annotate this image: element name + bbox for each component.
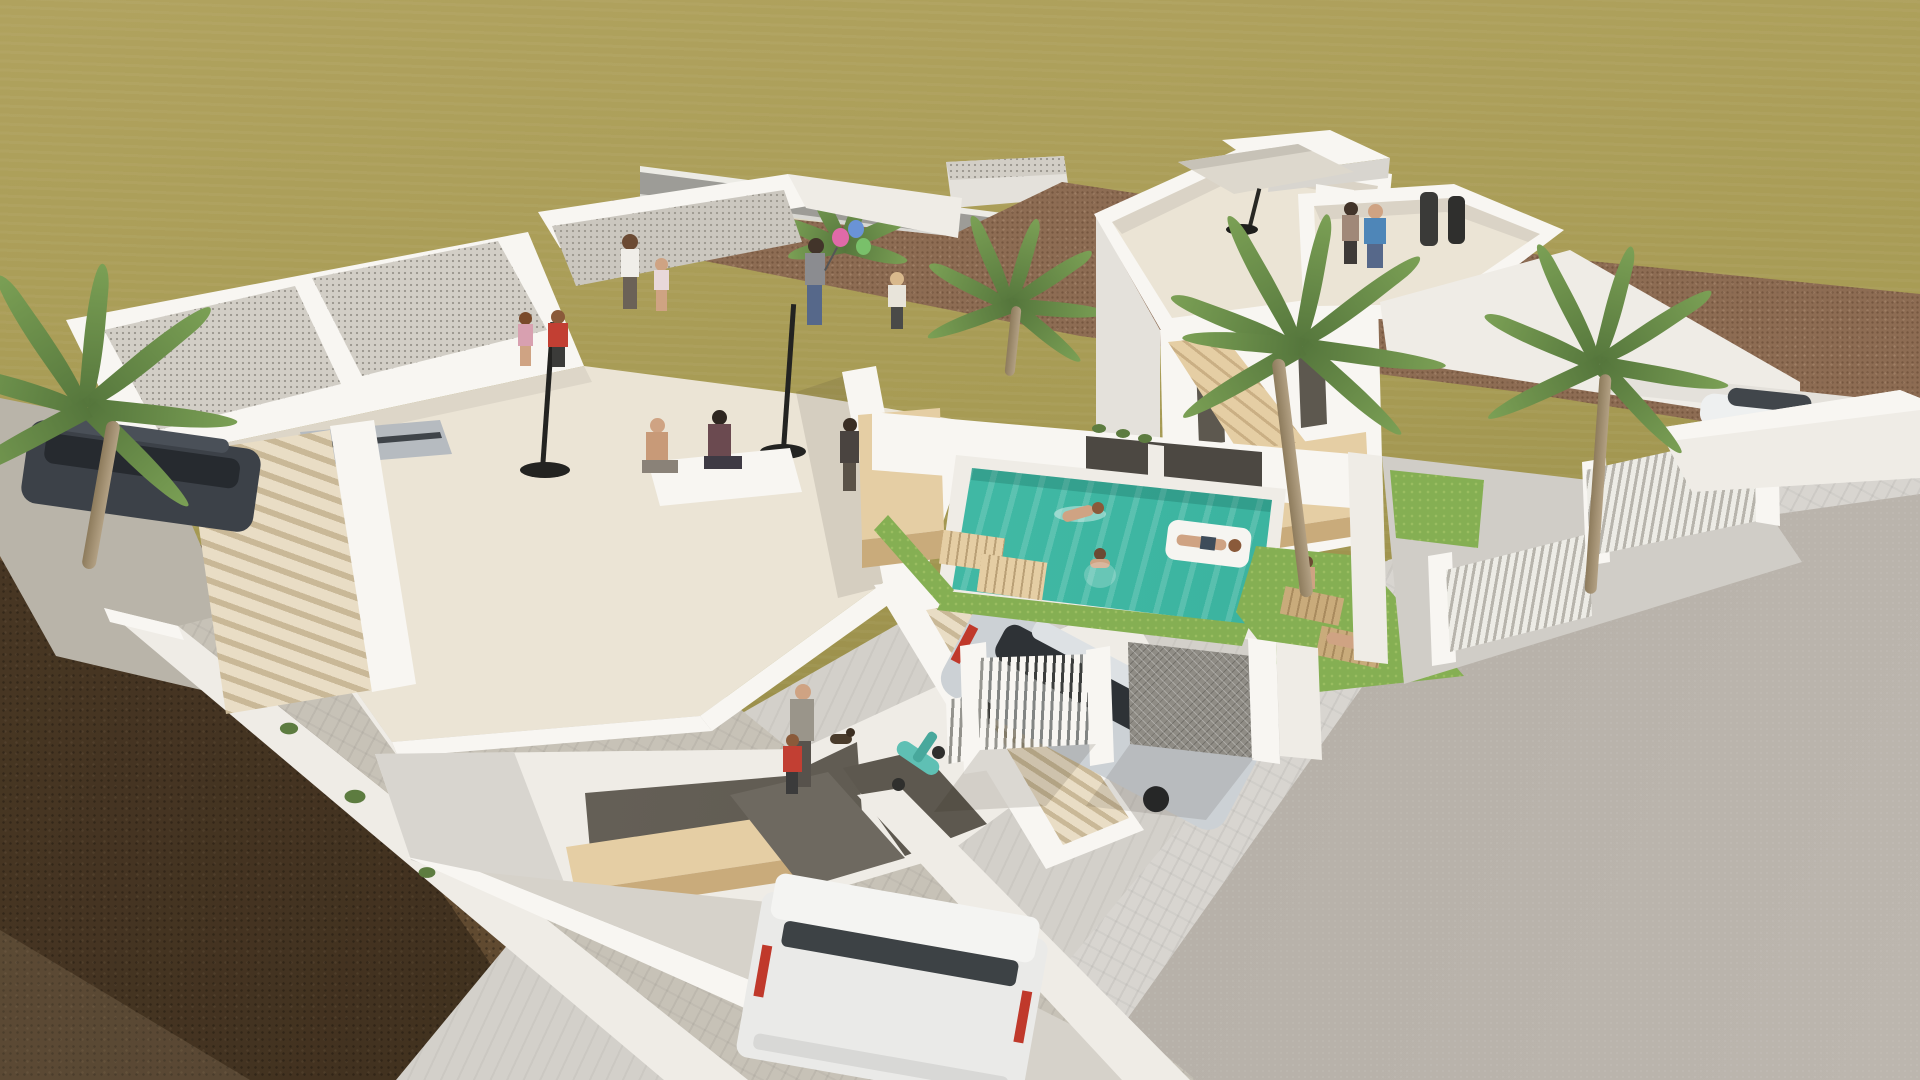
person-torso bbox=[1364, 218, 1386, 244]
person-torso bbox=[840, 431, 859, 463]
architectural-render-scene bbox=[0, 0, 1920, 1080]
person-legs bbox=[642, 460, 678, 473]
person-legs bbox=[552, 347, 565, 367]
person-standing-woman bbox=[618, 234, 644, 310]
swimmer-1 bbox=[1054, 498, 1114, 528]
person-head bbox=[1344, 202, 1358, 216]
scooter-wheel bbox=[892, 778, 905, 791]
person-legs bbox=[1344, 241, 1357, 264]
person-head bbox=[650, 418, 665, 433]
person-woman-with-balloons bbox=[800, 236, 836, 330]
person-legs bbox=[656, 290, 667, 311]
person-legs bbox=[843, 463, 856, 491]
balloon-green bbox=[856, 238, 871, 255]
person-woman-deck bbox=[1340, 202, 1362, 264]
balloon-blue bbox=[848, 220, 864, 238]
person-child-wing bbox=[884, 272, 910, 332]
swimmer-head bbox=[1092, 502, 1104, 514]
person-legs bbox=[807, 285, 822, 325]
person-on-stair-landing bbox=[836, 418, 864, 494]
person-head bbox=[622, 234, 638, 250]
person-child-backpack bbox=[780, 734, 806, 796]
balloon-pink bbox=[832, 228, 849, 247]
person-girl bbox=[516, 312, 536, 368]
person-seated-woman bbox=[700, 410, 746, 490]
person-dark-2 bbox=[1448, 196, 1465, 244]
plant-tuft bbox=[345, 790, 366, 804]
person-legs bbox=[704, 456, 742, 469]
person-torso bbox=[646, 432, 668, 462]
person-head bbox=[843, 418, 857, 432]
wall-plant bbox=[1116, 429, 1130, 438]
person-boy-red bbox=[545, 310, 575, 368]
person-torso bbox=[548, 323, 568, 347]
dog-head bbox=[846, 728, 855, 737]
person-head bbox=[890, 272, 904, 286]
umbrella-base-1 bbox=[520, 462, 570, 478]
person-seated-man bbox=[640, 418, 684, 490]
plant-tuft bbox=[280, 723, 298, 735]
person-legs bbox=[520, 346, 531, 366]
person-head bbox=[795, 684, 811, 700]
wall-plant bbox=[1092, 424, 1106, 433]
backpack-red bbox=[783, 746, 802, 772]
person-child bbox=[652, 258, 672, 312]
person-torso bbox=[621, 249, 639, 277]
person-legs bbox=[891, 307, 903, 329]
person-torso bbox=[654, 270, 669, 290]
person-torso bbox=[708, 424, 731, 458]
scooter-teal bbox=[884, 722, 958, 806]
swim-splash bbox=[1084, 562, 1116, 588]
person-legs bbox=[623, 277, 637, 309]
person-man-blue bbox=[1360, 204, 1390, 268]
person-head bbox=[712, 410, 727, 425]
person-head bbox=[808, 238, 824, 254]
wall-plant bbox=[1138, 434, 1152, 443]
scooter-wheel bbox=[932, 746, 945, 759]
float-person-shorts bbox=[1200, 536, 1216, 551]
person-legs bbox=[786, 772, 798, 794]
person-dark-1 bbox=[1420, 192, 1438, 246]
swimmer-2 bbox=[1084, 548, 1118, 592]
plant-tuft bbox=[419, 867, 436, 878]
person-head bbox=[1368, 204, 1383, 219]
person-head bbox=[551, 310, 565, 324]
person-legs bbox=[1367, 244, 1383, 268]
dog bbox=[826, 728, 856, 752]
person-torso bbox=[1342, 215, 1359, 241]
person-torso bbox=[888, 285, 906, 307]
person-torso bbox=[805, 253, 825, 285]
person-torso bbox=[518, 324, 533, 346]
